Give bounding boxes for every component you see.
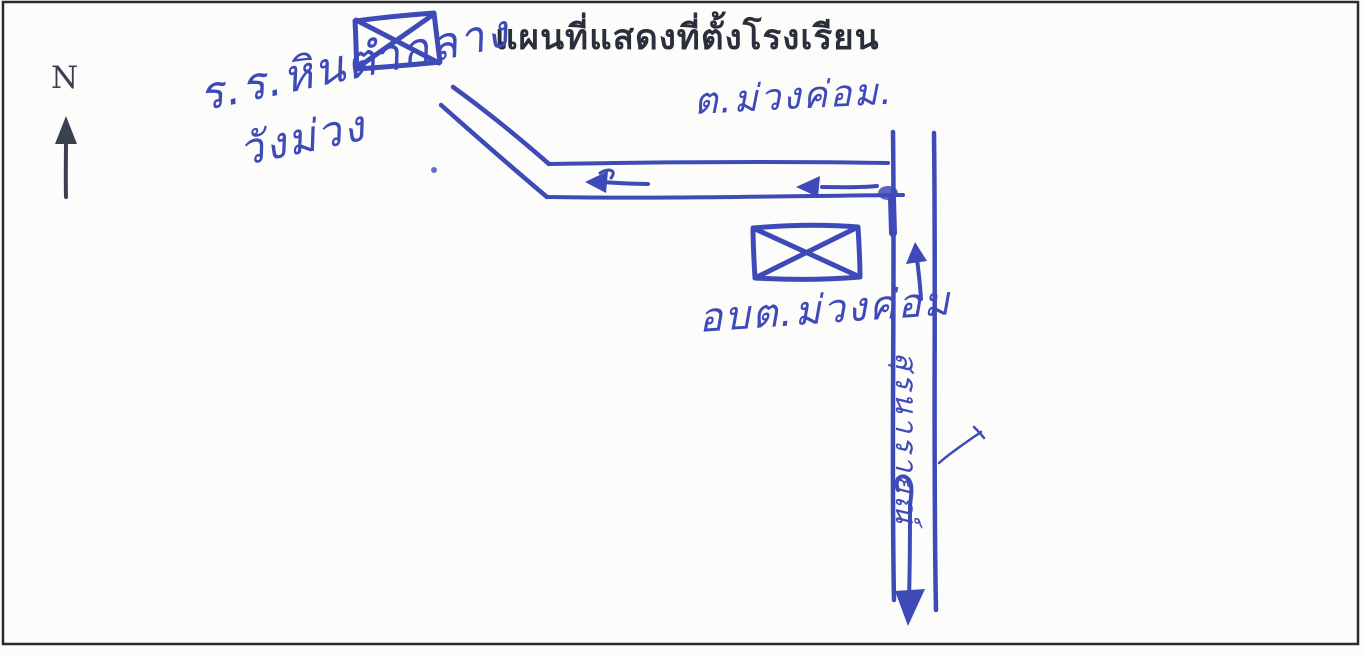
sao-box-icon [753,225,860,279]
scanned-map-page: แผนที่แสดงที่ตั้งโรงเรียน N ร.ร.หินตำกลา… [0,0,1365,656]
subdistrict-label: ต.ม่วงค่อม. [692,62,895,131]
west-arrow-icon [585,170,648,193]
north-arrow-icon [55,116,77,197]
ink-speck [431,167,437,173]
compass-label: N [51,60,78,96]
road-label: สุรนารายณ์ [882,352,929,526]
diagonal-road [441,87,549,197]
pen-stroke [939,427,984,463]
map-title: แผนที่แสดงที่ตั้งโรงเรียน [495,10,880,65]
